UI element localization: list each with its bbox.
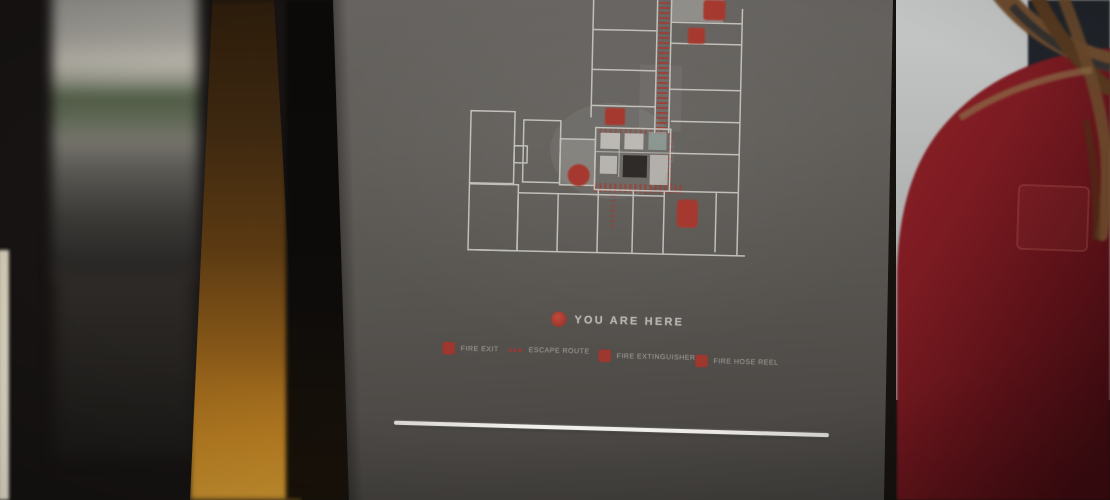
fire-exit-map-marker bbox=[703, 0, 725, 20]
legend-item-fire-extinguisher: FIRE EXTINGUISHER bbox=[598, 350, 695, 364]
fire-equipment-map-marker bbox=[677, 199, 699, 227]
light-sliver bbox=[0, 250, 9, 500]
legend-item-label: FIRE EXTINGUISHER bbox=[617, 353, 696, 362]
fire-extinguisher-marker-icon bbox=[598, 350, 610, 362]
right-side-scene bbox=[890, 0, 1110, 500]
you-are-here-label: YOU ARE HERE bbox=[574, 314, 684, 328]
plan-rooms bbox=[468, 0, 751, 256]
photo-of-evacuation-sign: YOU ARE HERE FIRE EXIT ESCAPE ROUTE FIRE… bbox=[0, 0, 1110, 500]
fire-exit-marker-icon bbox=[443, 342, 455, 354]
you-are-here-marker-icon bbox=[551, 312, 566, 327]
legend-item-label: FIRE HOSE REEL bbox=[713, 358, 778, 366]
you-are-here-row: YOU ARE HERE bbox=[551, 312, 684, 330]
sweater-graphic bbox=[1017, 185, 1089, 251]
legend-item-escape-route: ESCAPE ROUTE bbox=[509, 347, 590, 356]
legend-item-fire-exit: FIRE EXIT bbox=[443, 342, 499, 355]
escape-route-line-icon bbox=[509, 349, 523, 352]
floor-plan-map bbox=[439, 0, 766, 289]
legend-item-label: ESCAPE ROUTE bbox=[529, 347, 590, 355]
floor-reflection bbox=[55, 268, 195, 458]
fire-hose-reel-map-marker bbox=[605, 108, 625, 125]
fire-extinguisher-map-marker bbox=[688, 28, 705, 44]
legend-item-fire-hose-reel: FIRE HOSE REEL bbox=[695, 355, 778, 369]
legend-item-label: FIRE EXIT bbox=[461, 345, 499, 353]
divider-line bbox=[394, 421, 829, 438]
window-reflection bbox=[52, 0, 198, 280]
fire-hose-reel-marker-icon bbox=[695, 355, 707, 367]
